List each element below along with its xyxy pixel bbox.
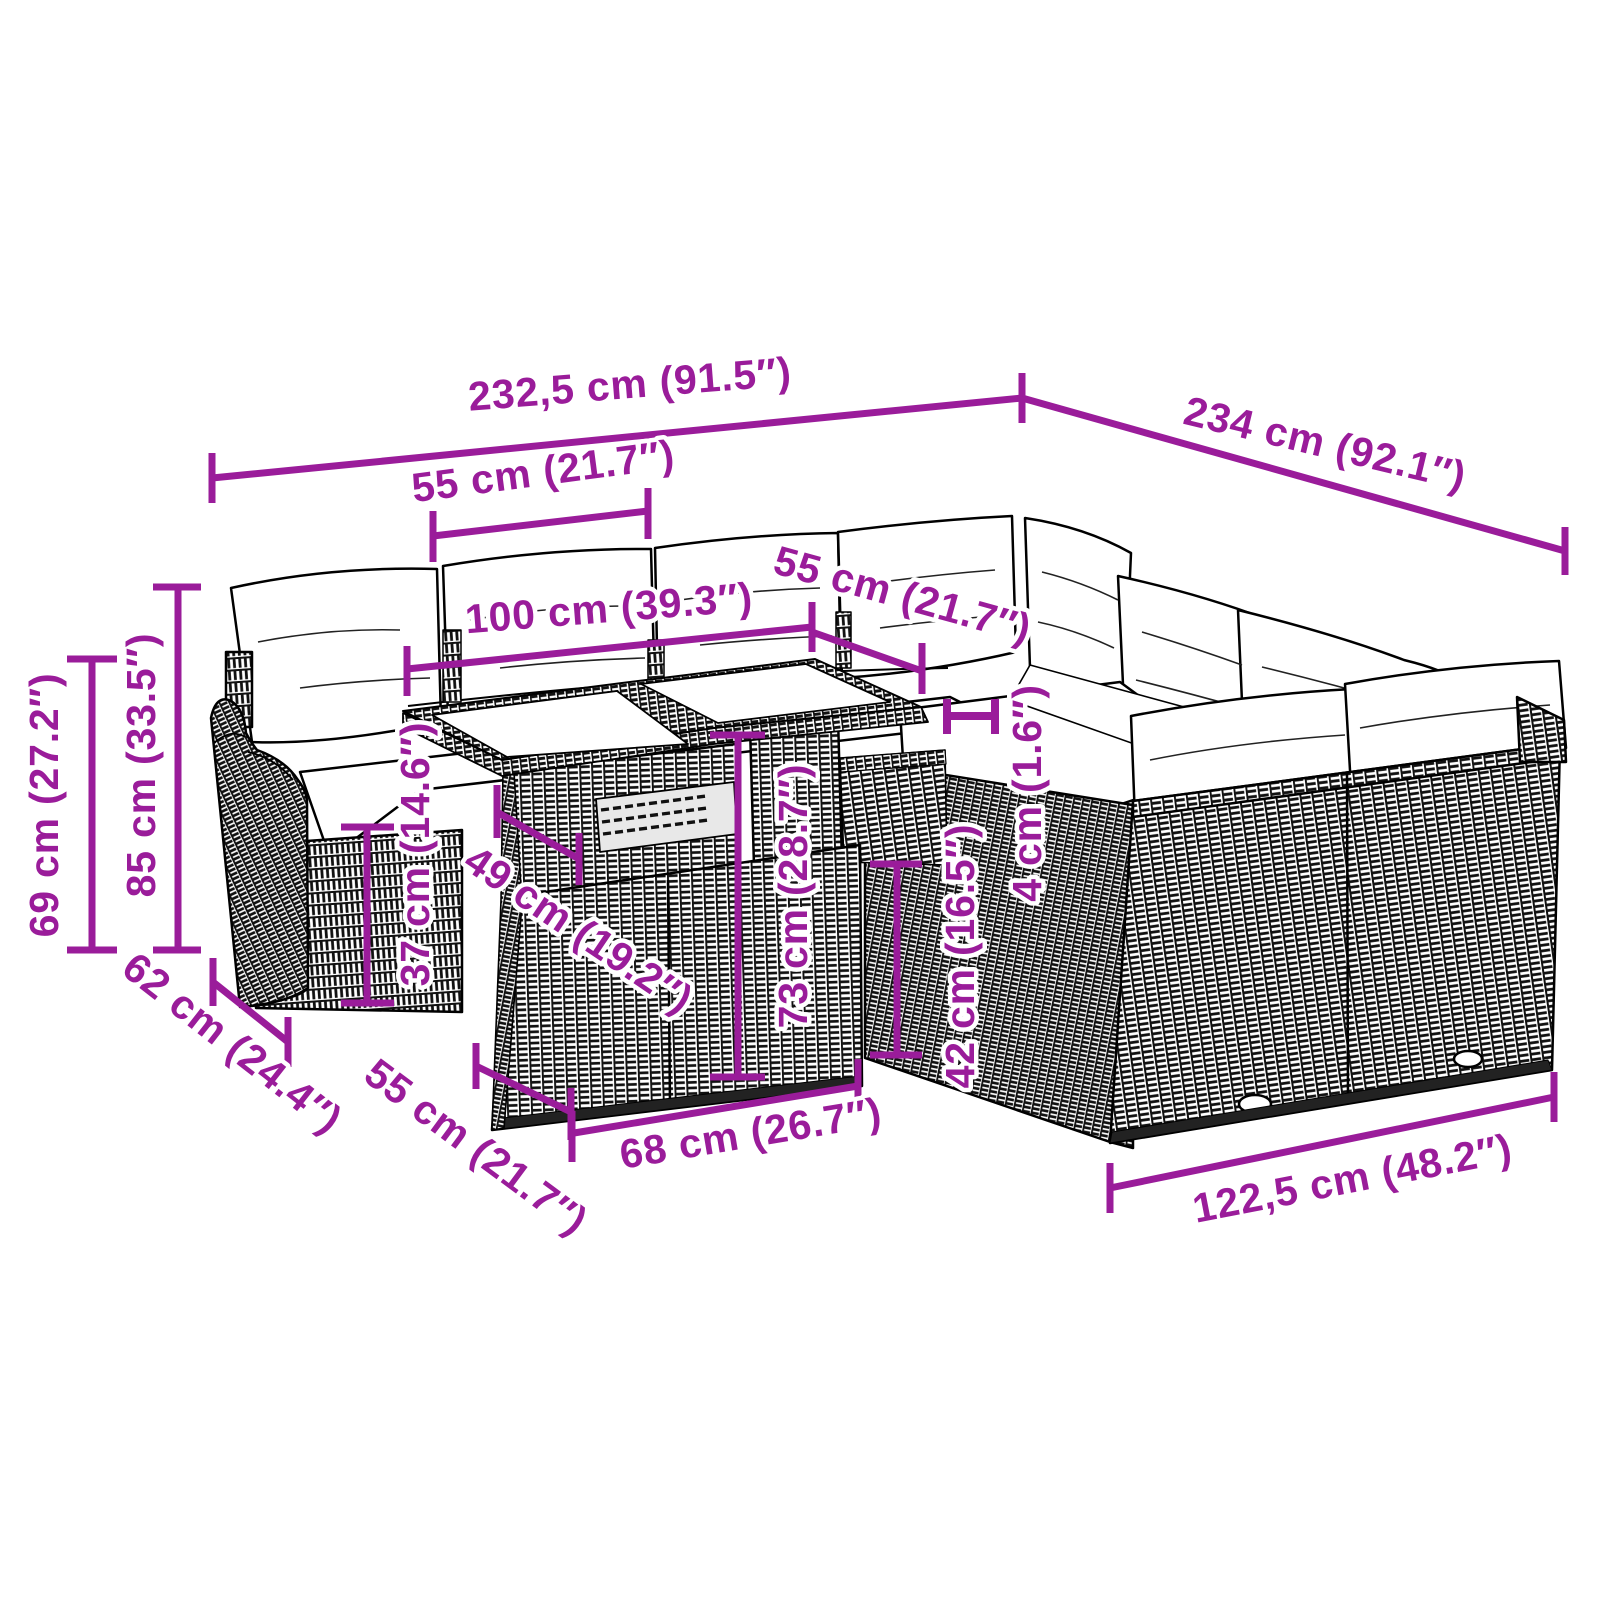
svg-text:37 cm (14.6″): 37 cm (14.6″)	[392, 722, 438, 987]
svg-text:69 cm (27.2″): 69 cm (27.2″)	[21, 673, 67, 938]
svg-text:73 cm (28.7″): 73 cm (28.7″)	[770, 764, 816, 1029]
svg-text:4 cm (1.6″): 4 cm (1.6″)	[1004, 684, 1050, 902]
svg-text:85 cm (33.5″): 85 cm (33.5″)	[118, 633, 164, 898]
svg-text:42 cm (16.5″): 42 cm (16.5″)	[937, 824, 983, 1089]
